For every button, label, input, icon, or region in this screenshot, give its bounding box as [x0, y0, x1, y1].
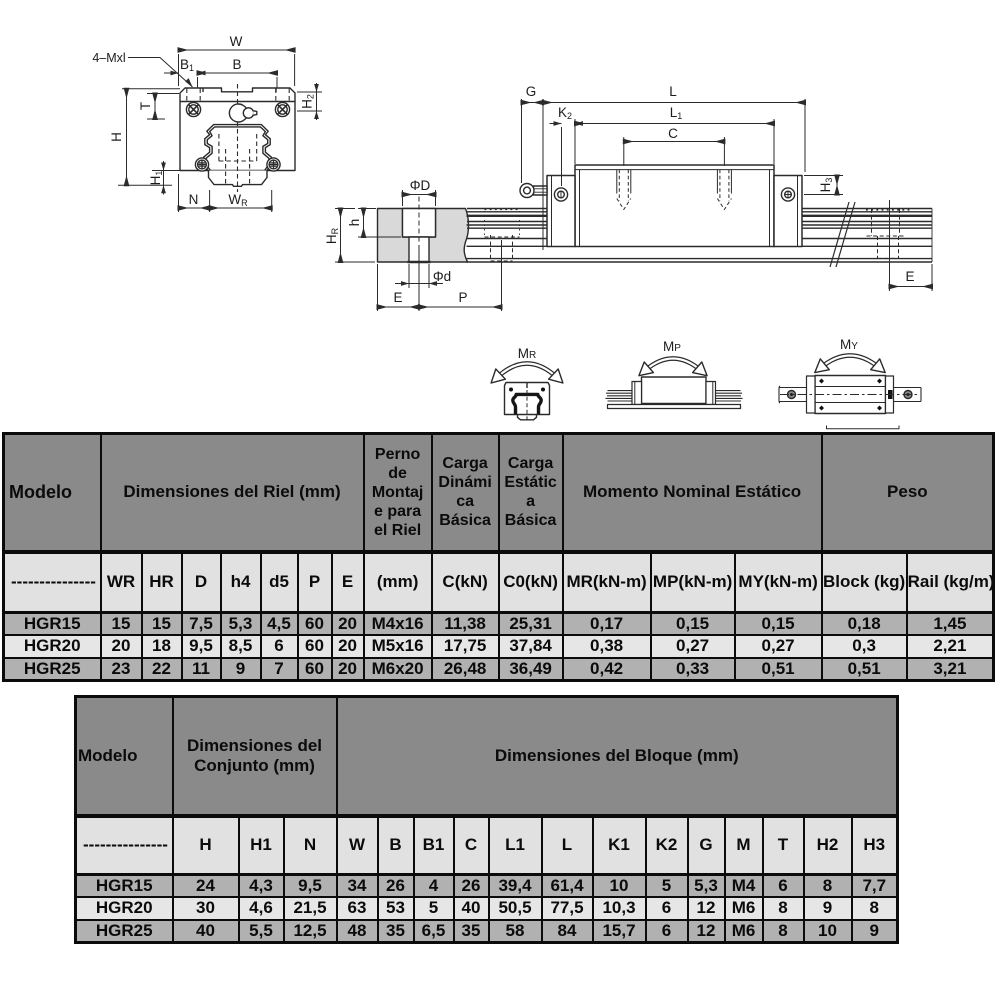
svg-text:C: C	[668, 126, 678, 141]
svg-text:Φd: Φd	[433, 269, 451, 284]
svg-text:B: B	[232, 57, 241, 72]
svg-text:G: G	[526, 84, 537, 99]
svg-text:MY: MY	[840, 337, 858, 352]
svg-text:L: L	[669, 84, 677, 99]
svg-text:E: E	[393, 290, 402, 305]
svg-text:N: N	[189, 192, 199, 207]
svg-text:H1: H1	[148, 171, 164, 186]
svg-text:HR: HR	[324, 227, 340, 244]
svg-text:B1: B1	[180, 57, 194, 73]
svg-text:T: T	[138, 102, 153, 110]
svg-text:H3: H3	[818, 178, 834, 193]
svg-text:MP: MP	[663, 339, 681, 354]
svg-text:P: P	[458, 290, 467, 305]
svg-text:H2: H2	[300, 94, 316, 109]
svg-text:K2: K2	[558, 105, 572, 121]
svg-text:ΦD: ΦD	[410, 178, 431, 193]
svg-text:W: W	[230, 34, 243, 49]
svg-text:MR: MR	[518, 346, 536, 361]
svg-text:E: E	[905, 269, 914, 284]
svg-text:4–Mxl: 4–Mxl	[92, 51, 125, 65]
svg-text:WR: WR	[228, 192, 248, 208]
svg-text:h: h	[347, 219, 362, 227]
svg-text:L1: L1	[670, 105, 683, 121]
svg-text:H: H	[109, 132, 124, 142]
